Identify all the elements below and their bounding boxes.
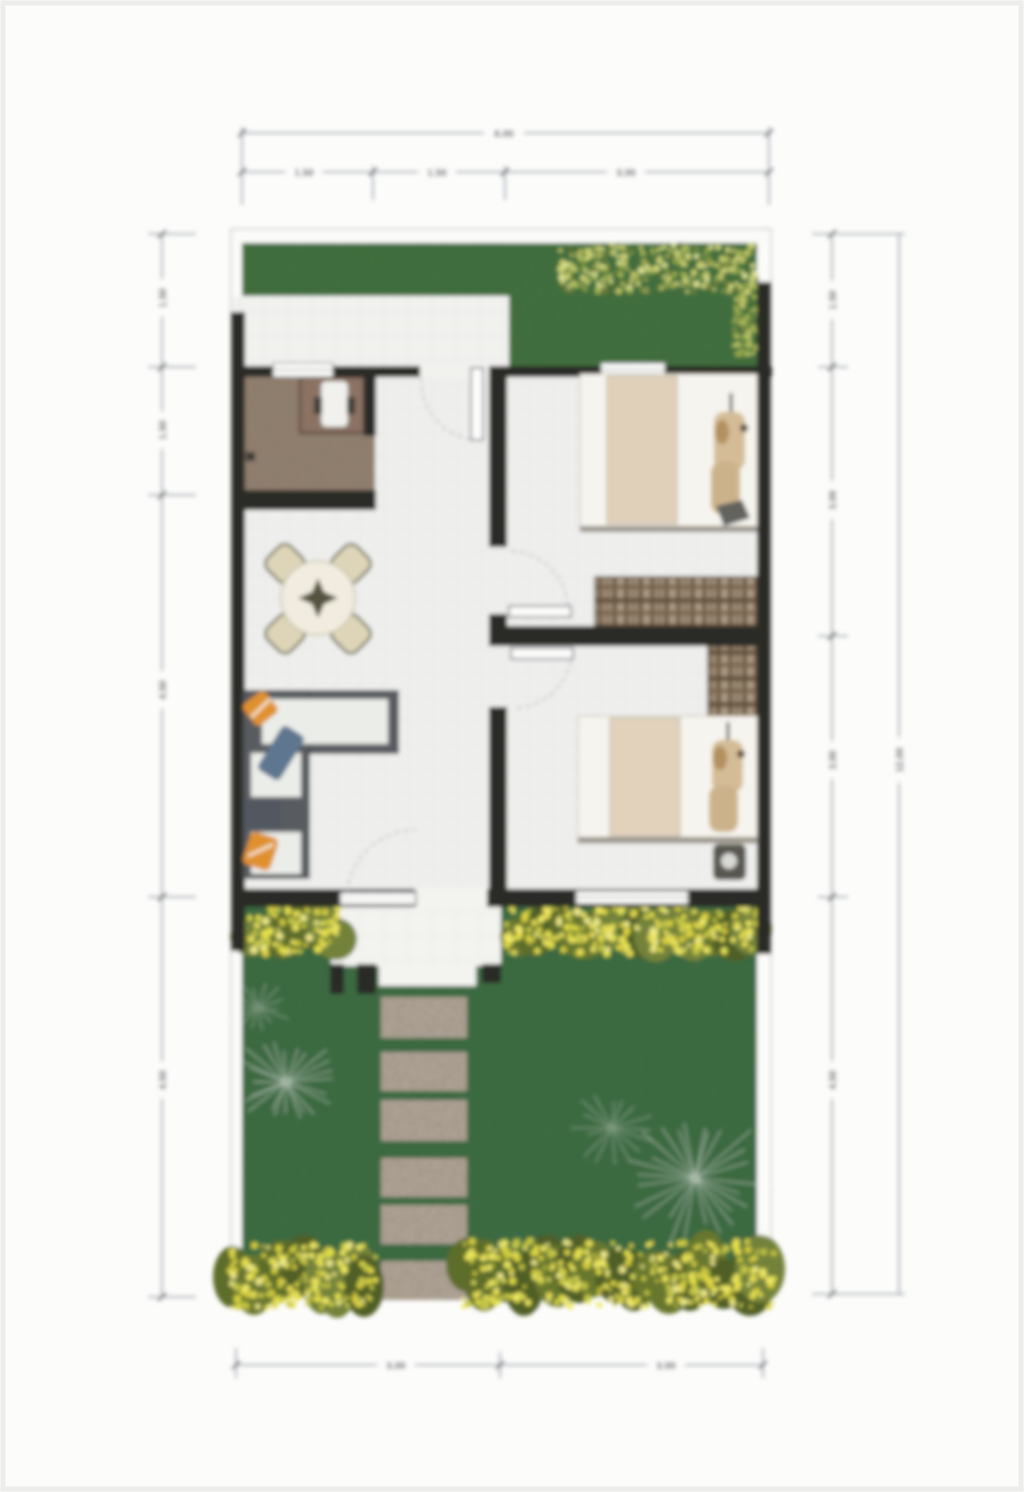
- svg-text:1.50: 1.50: [828, 290, 839, 310]
- svg-text:1.50: 1.50: [294, 168, 314, 179]
- svg-text:12.00: 12.00: [895, 747, 906, 772]
- svg-text:3.00: 3.00: [828, 750, 839, 770]
- svg-text:4.50: 4.50: [158, 680, 169, 700]
- svg-text:4.50: 4.50: [158, 1070, 169, 1090]
- svg-text:6.00: 6.00: [494, 129, 514, 140]
- svg-text:3.00: 3.00: [828, 490, 839, 510]
- svg-text:4.50: 4.50: [828, 1070, 839, 1090]
- svg-text:1.50: 1.50: [158, 288, 169, 308]
- svg-text:3.00: 3.00: [656, 1361, 676, 1372]
- svg-text:1.50: 1.50: [427, 168, 447, 179]
- svg-text:3.00: 3.00: [386, 1361, 406, 1372]
- svg-text:3.00: 3.00: [616, 168, 636, 179]
- svg-text:1.50: 1.50: [158, 420, 169, 440]
